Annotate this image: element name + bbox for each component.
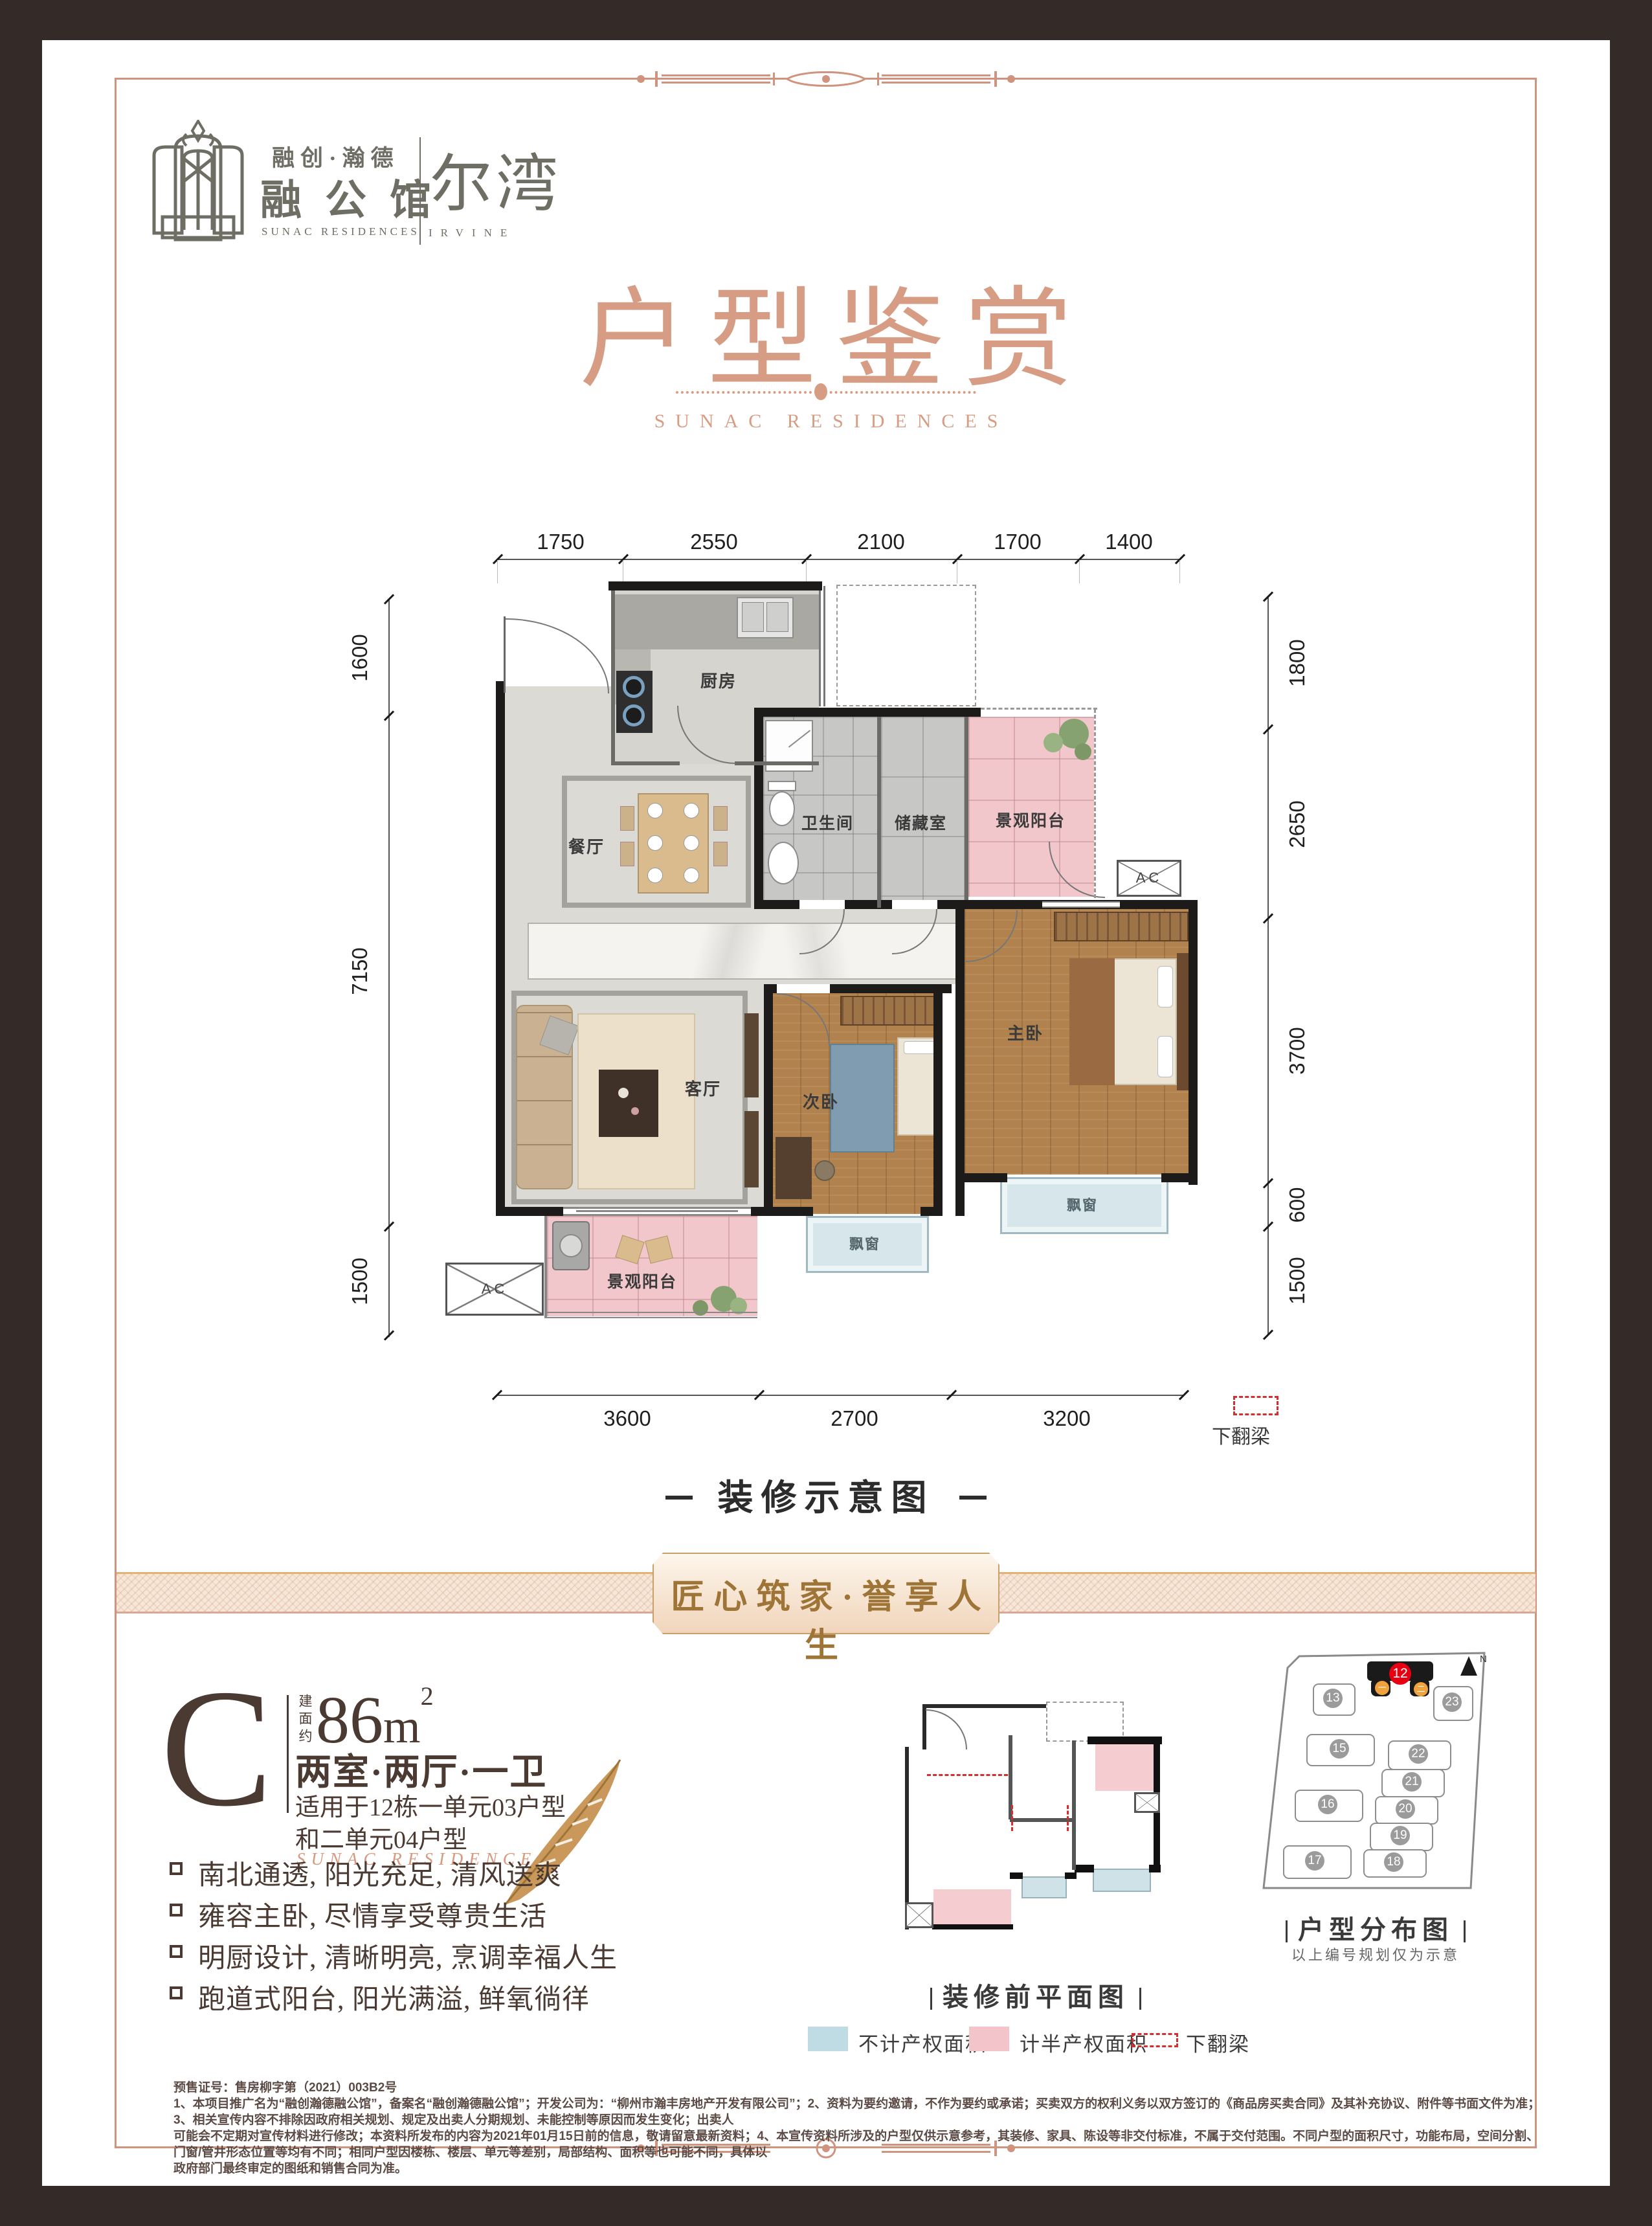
caption-bar xyxy=(1464,1920,1466,1942)
plate xyxy=(647,803,663,818)
stove-burner xyxy=(623,676,645,698)
pillow xyxy=(1157,966,1173,1007)
bath-toilet xyxy=(769,791,795,826)
master-wardrobe xyxy=(1054,912,1189,941)
room-master-label: 主卧 xyxy=(1007,1020,1044,1044)
siteplan-caption-row: 户型分布图 xyxy=(1246,1909,1505,1946)
wall xyxy=(608,581,822,590)
unit-letter: C xyxy=(161,1682,284,1815)
building-20-badge: 20 xyxy=(1396,1799,1415,1819)
master-bed-blanket xyxy=(1069,958,1115,1085)
brand-name-en: SUNAC RESIDENCES xyxy=(262,225,420,238)
dining-chair xyxy=(620,842,634,866)
tv-console xyxy=(744,1013,759,1097)
building-13-badge: 13 xyxy=(1323,1689,1343,1708)
room-balcony-top-label: 景观阳台 xyxy=(996,808,1066,831)
wall-thin xyxy=(615,761,680,765)
brand-emblem-icon xyxy=(146,120,250,246)
dining-chair xyxy=(620,806,634,831)
door-gap xyxy=(799,900,845,909)
room-second-label: 次卧 xyxy=(803,1089,839,1113)
ac-label: AC xyxy=(482,1281,508,1297)
title-dot xyxy=(814,383,827,400)
dim-right-1: 1800 xyxy=(1285,618,1310,708)
stove-burner xyxy=(623,704,645,726)
feature-bullet-icon xyxy=(170,1904,183,1917)
wall xyxy=(496,681,505,1216)
wall-thin xyxy=(611,590,615,765)
wall-thin xyxy=(735,761,819,765)
coffee-table xyxy=(599,1070,658,1137)
wall xyxy=(754,900,981,909)
siteplan-caption: 户型分布图 xyxy=(1298,1915,1453,1944)
legend-swatch-beam xyxy=(1132,2033,1178,2047)
ac-label: AC xyxy=(1136,870,1163,886)
building-19-badge: 19 xyxy=(1390,1826,1410,1845)
preplan-ac xyxy=(1134,1792,1160,1813)
kitchen-sink-basin xyxy=(742,602,764,632)
preplan-beam-dash xyxy=(1067,1805,1069,1831)
bay-master-label: 飘窗 xyxy=(1067,1194,1098,1215)
balcony-rail xyxy=(547,1312,757,1318)
pillow xyxy=(1157,1036,1173,1077)
preplan-drawing xyxy=(903,1680,1168,1965)
sliding-door-line xyxy=(576,1210,738,1212)
dim-bottom-3: 3200 xyxy=(1021,1406,1112,1431)
preplan-beam-dash xyxy=(1011,1805,1013,1831)
building-21-badge: 21 xyxy=(1402,1772,1422,1792)
room-balcony-bottom-label: 景观阳台 xyxy=(607,1269,677,1292)
preplan-wall xyxy=(926,1704,1046,1708)
dim-right-5: 1500 xyxy=(1285,1235,1310,1326)
north-arrow-icon xyxy=(1460,1656,1477,1676)
preplan-caption: 装修前平面图 xyxy=(943,1983,1129,2012)
plate xyxy=(647,868,663,883)
preplan-wall xyxy=(1065,1872,1077,1879)
wall xyxy=(1189,900,1198,1185)
dim-right-3: 3700 xyxy=(1285,1006,1310,1096)
bay-second-label: 飘窗 xyxy=(849,1233,880,1254)
north-label: N xyxy=(1480,1654,1487,1665)
disclaimer-block: 预售证号：售房柳字第（2021）003B2号 1、本项目推广名为“融创瀚德融公馆… xyxy=(173,2080,1541,2177)
master-bed-headboard xyxy=(1177,953,1189,1090)
plan-caption-row: 装修示意图 xyxy=(583,1468,1069,1520)
preplan-wall xyxy=(1088,1737,1162,1744)
feature-bullet-icon xyxy=(170,1945,183,1958)
building-16-badge: 16 xyxy=(1318,1795,1337,1814)
table-decor xyxy=(631,1107,639,1115)
brand-sub-en: IRVINE xyxy=(429,227,515,240)
banner-text: 匠心筑家·誉享人生 xyxy=(653,1569,999,1667)
wall xyxy=(772,1207,813,1216)
plate xyxy=(684,868,699,883)
dim-left-1: 1600 xyxy=(348,613,372,703)
building-22-badge: 22 xyxy=(1409,1744,1428,1764)
page-title: 户型鉴赏 xyxy=(0,251,1652,409)
feature-3: 明厨设计, 清晰明亮, 烹调幸福人生 xyxy=(198,1936,618,1975)
desk-chair xyxy=(814,1160,835,1181)
dim-line-bottom xyxy=(497,1395,1183,1396)
unit-divider xyxy=(287,1695,289,1813)
window-line xyxy=(1042,901,1120,908)
caption-bar xyxy=(930,1988,932,2010)
caption-dash xyxy=(665,1496,693,1500)
window-line xyxy=(819,586,825,706)
plant xyxy=(1075,743,1091,760)
washer-drum xyxy=(559,1234,583,1257)
disclaimer-line2: 1、本项目推广名为“融创瀚德融公馆”，备案名“融创瀚德融公馆”；开发公司为：“柳… xyxy=(173,2096,1541,2128)
brand-sub-cn: 尔湾 xyxy=(430,133,562,223)
preplan-wall xyxy=(932,1924,1013,1929)
wall-thin xyxy=(877,717,881,908)
bath-sink xyxy=(768,842,799,884)
room-dining-label: 餐厅 xyxy=(568,834,605,858)
poster: 融创·瀚德 融公馆 SUNAC RESIDENCES 尔湾 IRVINE 户型鉴… xyxy=(0,0,1652,2226)
dim-right-2: 2650 xyxy=(1285,779,1310,870)
preplan-pink-area xyxy=(1095,1744,1154,1791)
tv-console xyxy=(744,1111,759,1187)
dim-ext xyxy=(1179,560,1180,583)
legend-label-pink: 计半产权面积 xyxy=(1020,2028,1148,2057)
table-decor xyxy=(618,1088,629,1098)
door-gap xyxy=(892,900,937,909)
wall xyxy=(1161,1173,1198,1182)
dining-chair xyxy=(713,842,728,866)
preplan-entry-arc xyxy=(926,1709,967,1749)
balcony-dashed-edge xyxy=(1094,709,1096,898)
dim-ext xyxy=(957,560,957,583)
wall xyxy=(754,708,981,717)
kitchen-sink-basin xyxy=(766,602,788,632)
wall xyxy=(965,1173,1007,1182)
plan-caption: 装修示意图 xyxy=(717,1478,934,1518)
balcony-dashed-edge xyxy=(981,708,1097,710)
dim-top-5: 1400 xyxy=(1084,530,1174,554)
logo-divider xyxy=(419,137,421,245)
dim-top-1: 1750 xyxy=(515,530,606,554)
legend-swatch-pink xyxy=(969,2027,1009,2051)
border-ornament-top xyxy=(632,66,1020,92)
disclaimer-line1: 预售证号：售房柳字第（2021）003B2号 xyxy=(173,2080,1541,2096)
pillow xyxy=(904,1041,936,1054)
page-subtitle: SUNAC RESIDENCES xyxy=(0,410,1652,433)
dim-bottom-2: 2700 xyxy=(809,1406,900,1431)
building-15-badge: 15 xyxy=(1330,1739,1349,1759)
building-12-badge: 12 xyxy=(1389,1663,1411,1685)
dim-ext xyxy=(497,560,498,583)
plate xyxy=(684,835,699,851)
wall xyxy=(921,1207,943,1216)
caption-bar xyxy=(1286,1920,1288,1942)
feature-bullet-icon xyxy=(170,1862,183,1875)
dim-ext xyxy=(623,560,623,583)
brand-name-cn: 融公馆 xyxy=(260,167,454,227)
dim-ext xyxy=(806,560,807,583)
preplan-beam-dash xyxy=(927,1774,1008,1776)
caption-dash xyxy=(959,1496,987,1500)
dim-top-3: 2100 xyxy=(836,530,926,554)
feature-4: 跑道式阳台, 阳光满溢, 鲜氧徜徉 xyxy=(198,1977,590,2017)
disclaimer-line4: 政府部门最终审定的图纸和销售合同为准。 xyxy=(173,2161,1541,2177)
caption-bar xyxy=(1139,1988,1141,2010)
legend-swatch-blue xyxy=(808,2027,848,2051)
room-storage-label: 储藏室 xyxy=(895,811,947,834)
beam-legend-label: 下翻梁 xyxy=(1212,1421,1302,1449)
building-12-unit-2: 二 xyxy=(1414,1682,1428,1696)
preplan-blue-bay xyxy=(1093,1869,1151,1892)
dim-ext xyxy=(1079,560,1080,583)
unit-area-sup: 2 xyxy=(421,1681,434,1711)
dim-top-4: 1700 xyxy=(972,530,1063,554)
preplan-ac xyxy=(905,1902,933,1928)
disclaimer-line3: 可能会不定期对宣传材料进行修改；本资料所发布的内容为2021年01月15日前的信… xyxy=(173,2128,1541,2161)
dim-left-2: 7150 xyxy=(348,926,372,1017)
plate xyxy=(684,803,699,818)
wall-thin xyxy=(965,717,968,900)
plant xyxy=(1044,733,1063,752)
preplan-dashed-void xyxy=(1046,1702,1124,1742)
dining-chair xyxy=(713,806,728,831)
duct-void xyxy=(836,585,976,706)
feature-2: 雍容主卧, 尽情享受尊贵生活 xyxy=(198,1894,547,1934)
legend-label-beam: 下翻梁 xyxy=(1186,2028,1250,2057)
unit-area-label: 建面约 xyxy=(295,1694,315,1746)
balcony-rail xyxy=(544,1216,547,1318)
door-gap xyxy=(777,984,830,993)
wall xyxy=(933,993,943,1216)
building-17-badge: 17 xyxy=(1305,1851,1324,1871)
plate xyxy=(647,835,663,851)
dim-top-2: 2550 xyxy=(669,530,759,554)
preplan-wall xyxy=(1072,1740,1076,1870)
preplan-wall xyxy=(1010,1818,1075,1822)
room-living-label: 客厅 xyxy=(685,1076,721,1100)
ac-unit-bottom: AC xyxy=(445,1263,544,1316)
building-23-badge: 23 xyxy=(1442,1692,1462,1712)
dim-left-3: 1500 xyxy=(348,1236,372,1327)
desk xyxy=(776,1137,812,1199)
building-12-unit-1: 一 xyxy=(1375,1681,1389,1695)
second-wardrobe xyxy=(840,996,939,1026)
room-bath-label: 卫生间 xyxy=(801,811,854,834)
preplan-wall xyxy=(1010,1872,1023,1879)
preplan-wall xyxy=(1075,1865,1094,1872)
wall xyxy=(754,717,763,909)
wall xyxy=(955,900,965,1216)
wall xyxy=(764,993,773,1216)
ac-unit-top: AC xyxy=(1117,860,1181,897)
bath-toilet-tank xyxy=(768,781,796,791)
preplan-pink-area xyxy=(933,1889,1011,1924)
feature-bullet-icon xyxy=(170,1986,183,1999)
preplan-blue-bay xyxy=(1021,1876,1067,1898)
siteplan-note: 以上编号规划仅为示意 xyxy=(1246,1944,1505,1964)
building-18-badge: 18 xyxy=(1384,1852,1403,1872)
legend-label-blue: 不计产权面积 xyxy=(858,2028,987,2057)
preplan-caption-row: 装修前平面图 xyxy=(890,1976,1181,2014)
beam-legend-swatch xyxy=(1233,1396,1278,1415)
feature-1: 南北通透, 阳光充足, 清风送爽 xyxy=(198,1853,562,1893)
room-kitchen-label: 厨房 xyxy=(700,668,737,692)
second-rug xyxy=(830,1044,895,1152)
dim-bottom-1: 3600 xyxy=(582,1406,673,1431)
